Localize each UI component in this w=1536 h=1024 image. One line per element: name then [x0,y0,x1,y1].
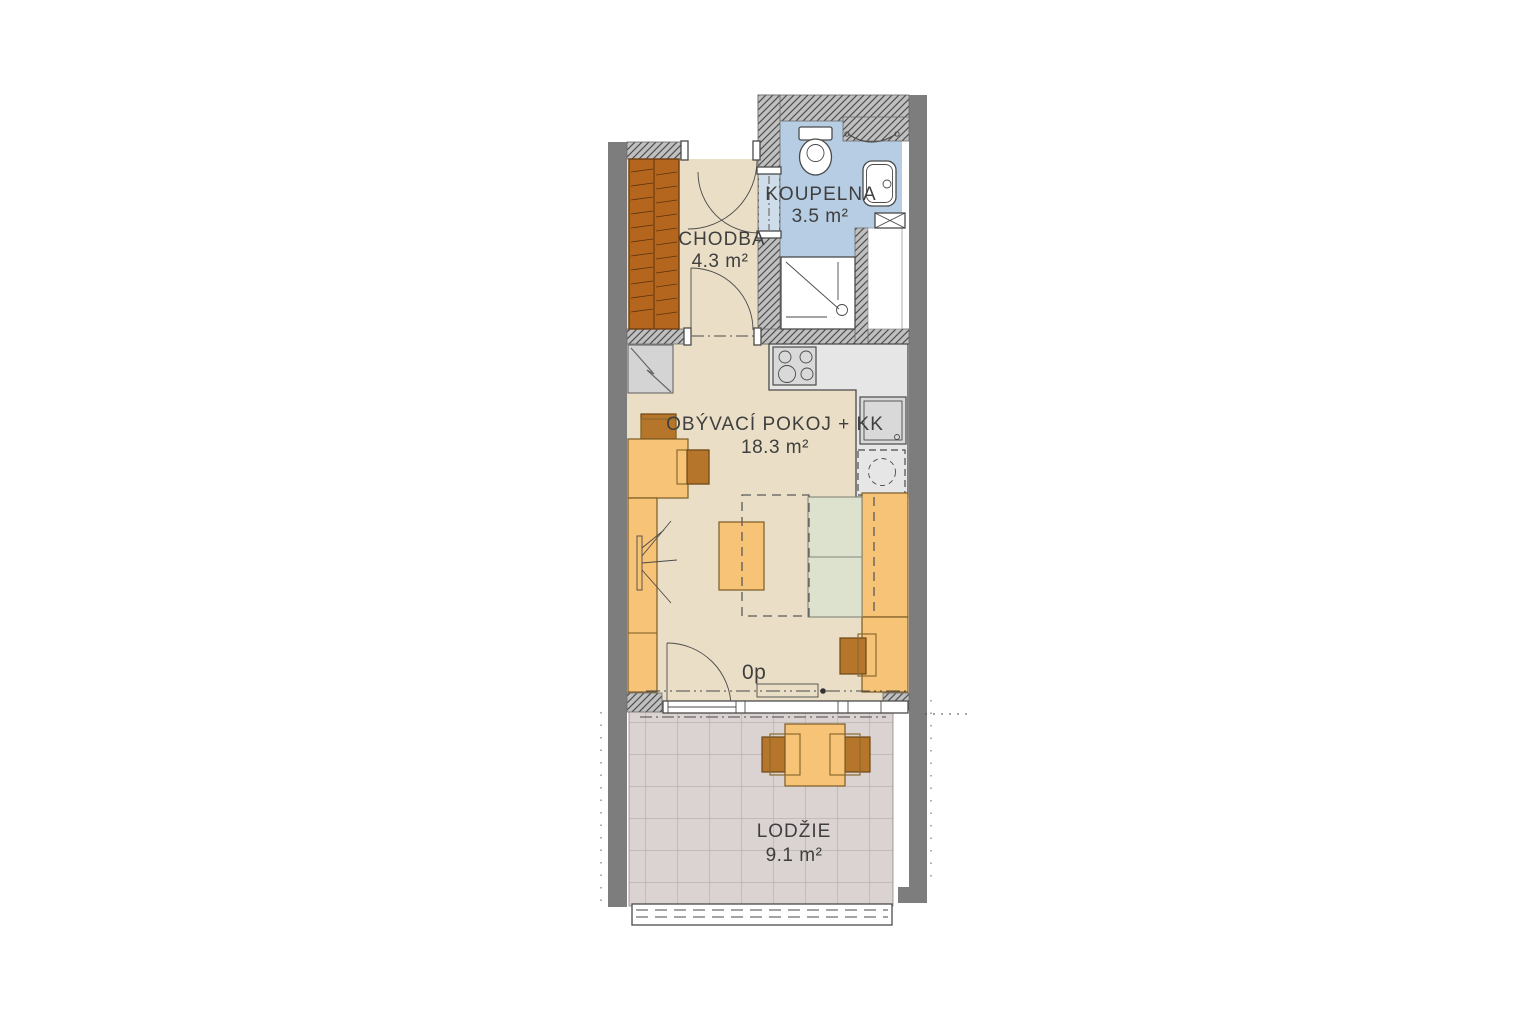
floor-plan: KOUPELNA 3.5 m² CHODBA 4.3 m² OBÝVACÍ PO… [0,0,1536,1024]
room-label-koupelna: KOUPELNA [765,184,876,205]
hallway-bottom-wall [627,329,687,344]
desk [628,439,688,498]
hallway-passage-floor [687,329,758,344]
level-dot [820,688,826,694]
room-label-chodba: CHODBA [678,229,765,250]
loggia-chair-left [762,737,785,772]
window-band [663,701,908,713]
wardrobe-icon [629,159,679,329]
room-area-obyvaci-pokoj: 18.3 m² [741,437,809,458]
loggia-left-stub-wall [627,693,662,712]
right-outer-wall [909,95,927,887]
toilet-icon [799,127,832,175]
floor-level-marker: 0p [742,661,766,684]
railing [632,904,892,925]
wall-cabinet [628,498,657,692]
room-area-lodzie: 9.1 m² [766,845,823,866]
boiler-icon [628,345,673,393]
left-outer-wall [608,142,627,907]
room-label-lodzie: LODŽIE [757,820,832,842]
ventilation-shaft-icon [875,213,905,228]
desk-chair-right [687,450,709,484]
floor-plan-page: KOUPELNA 3.5 m² CHODBA 4.3 m² OBÝVACÍ PO… [0,0,1536,1024]
sofa-bench [862,617,908,692]
cooktop-icon [773,347,816,385]
shower-icon [781,257,855,329]
installation-shaft [868,228,902,329]
room-label-obyvaci-pokoj: OBÝVACÍ POKOJ + KK [666,414,884,435]
hallway-top-wall [627,142,685,159]
room-area-koupelna: 3.5 m² [792,206,849,227]
sofa-body [862,493,908,617]
room-area-chodba: 4.3 m² [692,251,749,272]
right-wall-foot [898,887,927,903]
loggia-table [785,724,845,786]
loggia-chair-right [845,737,870,772]
shower-shaft-wall [855,228,868,344]
bathroom-bottom-wall [758,329,909,344]
